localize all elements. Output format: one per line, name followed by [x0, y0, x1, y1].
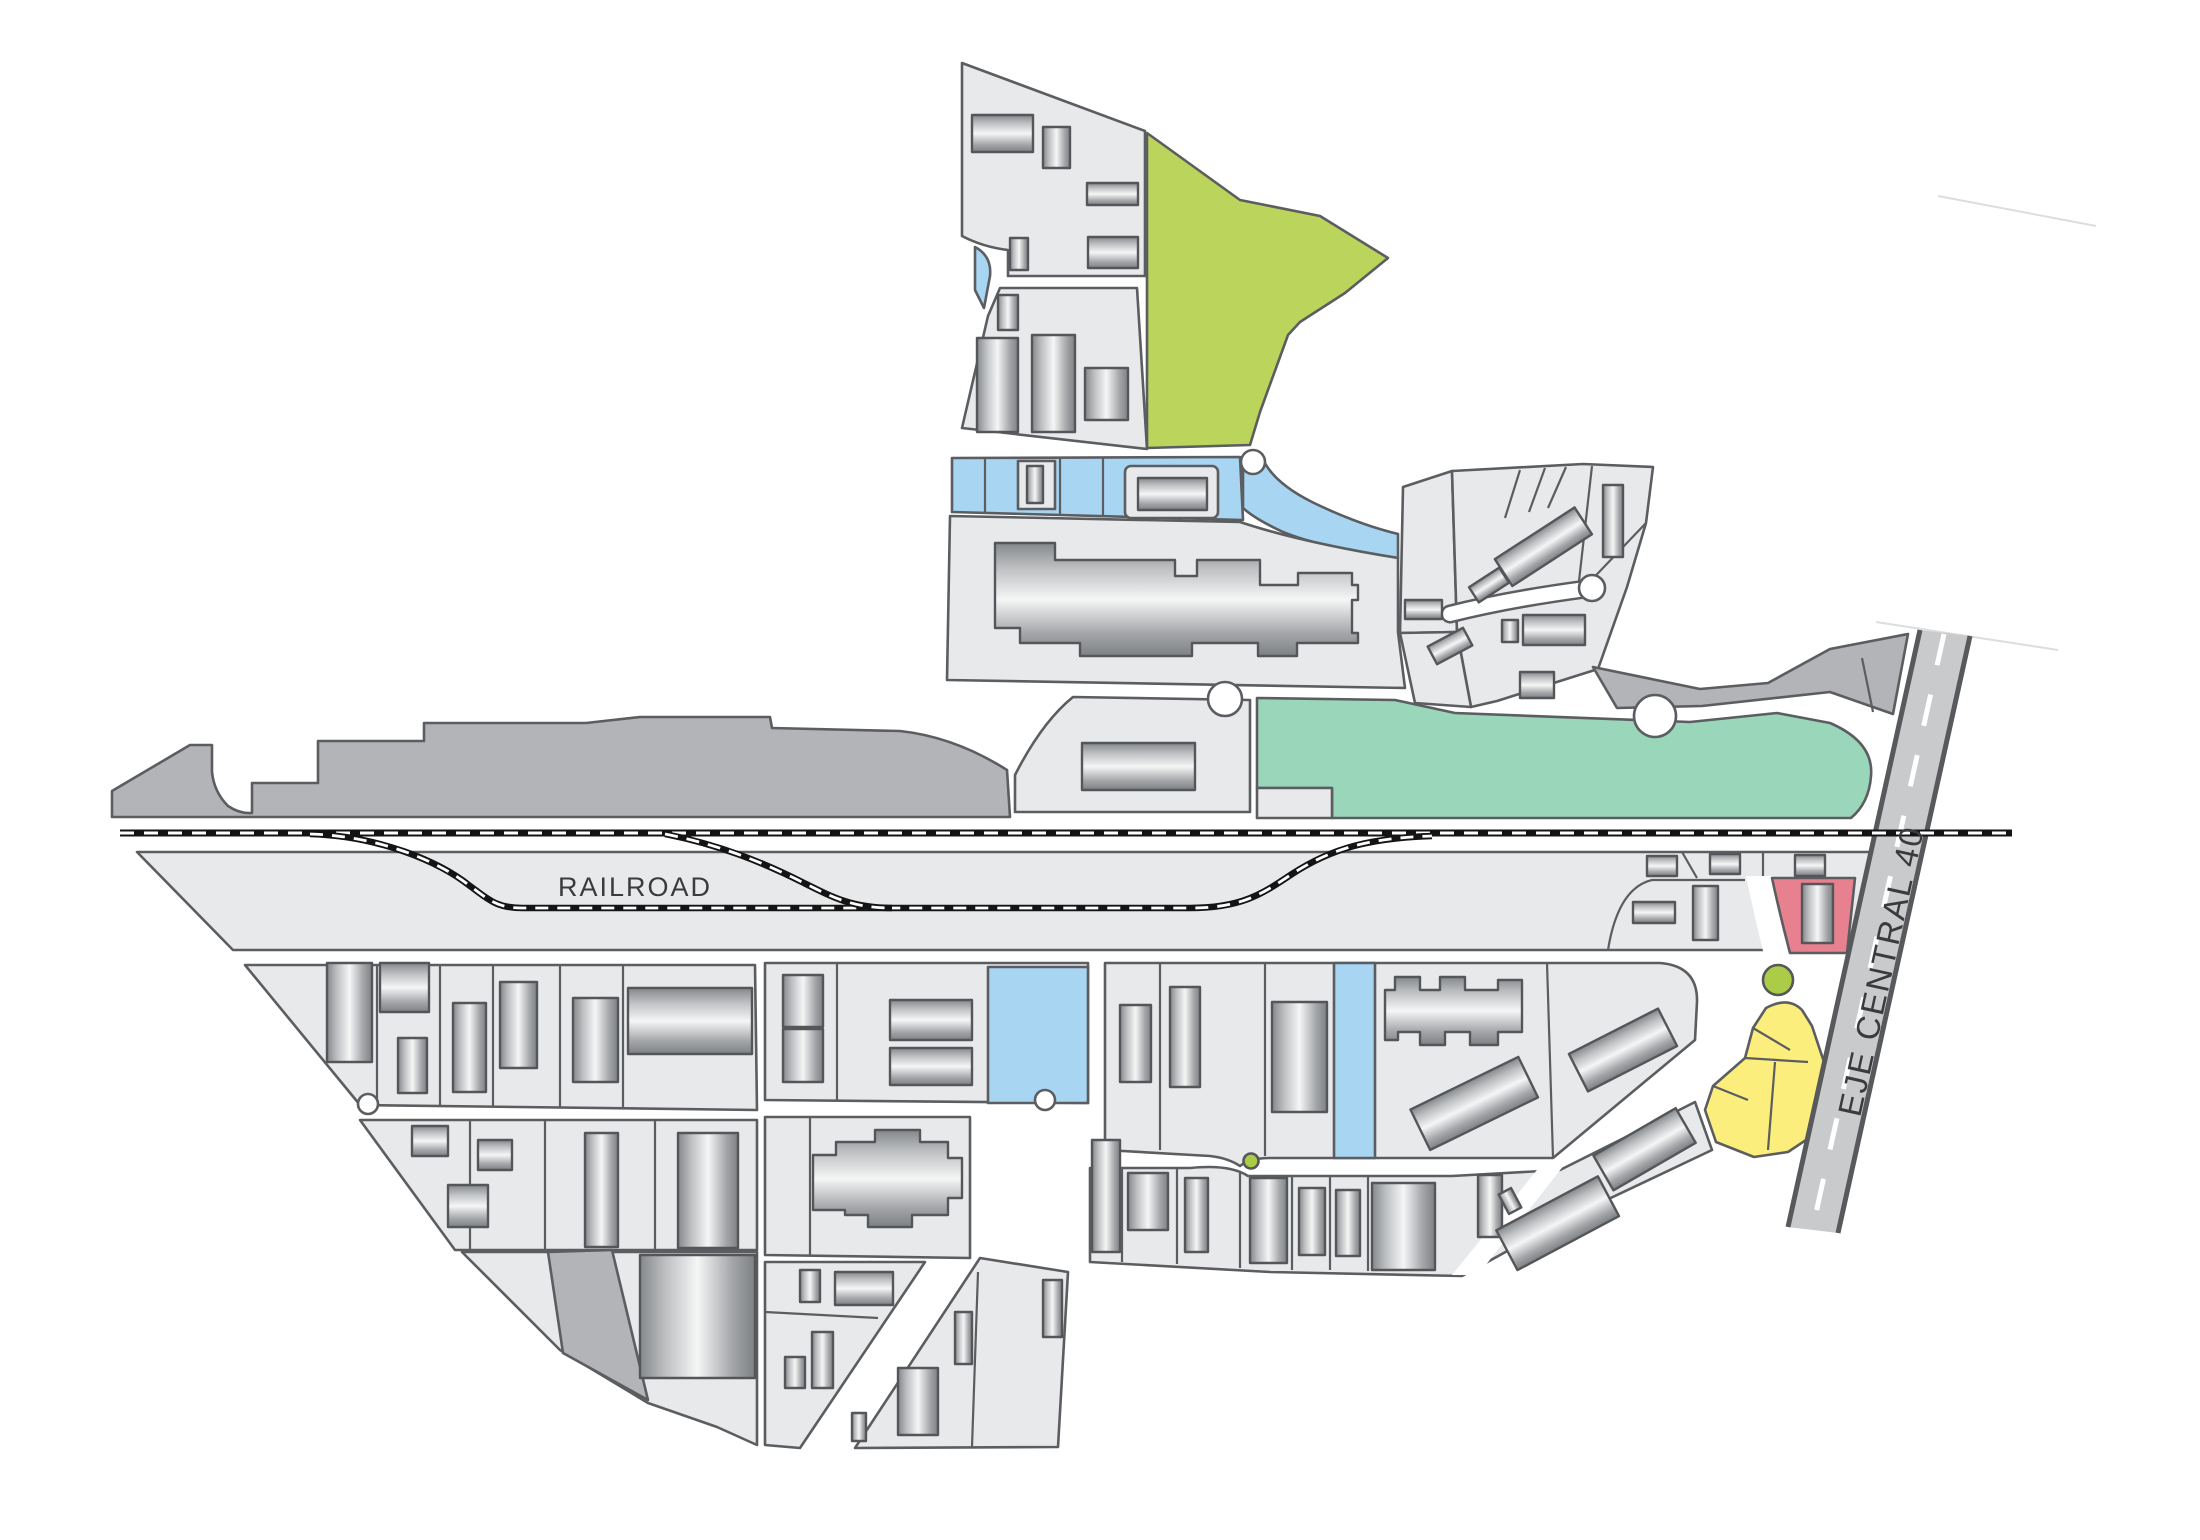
site-plan-map: RAILROAD EJE CENTRAL 40	[0, 0, 2200, 1540]
building	[1082, 743, 1195, 790]
building	[398, 1038, 427, 1093]
green-dot-large	[1763, 965, 1793, 995]
building	[453, 1003, 486, 1092]
building	[1085, 368, 1128, 420]
railroad-label: RAILROAD	[558, 872, 712, 902]
blue-strip-bottom	[1334, 963, 1375, 1158]
teal-zone	[1257, 698, 1871, 818]
building	[1138, 478, 1207, 510]
road-bump-mid	[1035, 1090, 1055, 1110]
blue-parcel-mid	[988, 967, 1088, 1103]
building	[1372, 1183, 1435, 1270]
building	[1250, 1178, 1287, 1263]
building	[1633, 902, 1675, 923]
building	[972, 115, 1033, 152]
building	[783, 1029, 823, 1082]
building	[998, 295, 1018, 330]
building	[785, 1357, 805, 1388]
green-dot-small	[1244, 1154, 1259, 1169]
teal-notch-parcel	[1257, 788, 1332, 818]
building	[478, 1140, 512, 1170]
building	[812, 1332, 833, 1388]
building	[628, 988, 752, 1054]
building	[585, 1133, 618, 1247]
faint-boundary-lines	[1876, 196, 2096, 650]
building	[898, 1368, 938, 1435]
dark-strip-left	[112, 717, 1010, 817]
large-building	[640, 1255, 755, 1378]
building	[1603, 485, 1623, 557]
building	[1043, 127, 1070, 168]
cul-de-sac-bulb	[1579, 575, 1605, 601]
building	[412, 1126, 448, 1156]
building	[327, 963, 372, 1062]
building	[1299, 1188, 1325, 1255]
road-bump-left	[358, 1094, 378, 1114]
building	[1087, 183, 1138, 205]
building	[1043, 1280, 1062, 1337]
lime-green-zone	[1147, 133, 1388, 448]
building	[852, 1413, 866, 1441]
blue-sliver	[975, 247, 990, 308]
building	[890, 1048, 972, 1085]
building	[500, 982, 537, 1068]
building	[1336, 1190, 1360, 1256]
building	[1795, 855, 1825, 876]
building-on-red-parcel	[1802, 884, 1833, 943]
road-notch-mid	[1208, 682, 1242, 716]
building	[1523, 615, 1585, 645]
building	[1405, 600, 1442, 619]
building	[1520, 672, 1554, 698]
building	[1010, 238, 1028, 270]
building	[977, 338, 1018, 432]
building	[1272, 1002, 1327, 1112]
building	[1502, 620, 1518, 642]
building	[1088, 237, 1138, 268]
building	[890, 1000, 972, 1040]
building	[1092, 1140, 1120, 1252]
roundabout	[1634, 695, 1676, 737]
building	[1185, 1178, 1208, 1252]
building	[800, 1270, 820, 1302]
building	[1478, 1175, 1502, 1237]
building	[1170, 987, 1200, 1087]
building	[573, 998, 618, 1082]
building	[448, 1185, 488, 1227]
building	[1128, 1173, 1168, 1230]
building	[955, 1312, 972, 1364]
building	[1647, 856, 1677, 876]
road-notch-green-tip	[1241, 450, 1265, 474]
building	[1027, 466, 1043, 503]
building	[1693, 886, 1718, 940]
building	[835, 1272, 893, 1305]
building	[1710, 854, 1740, 874]
building	[1032, 335, 1075, 432]
building	[380, 963, 429, 1012]
building	[1120, 1005, 1151, 1082]
building	[783, 975, 823, 1027]
building	[678, 1133, 738, 1248]
